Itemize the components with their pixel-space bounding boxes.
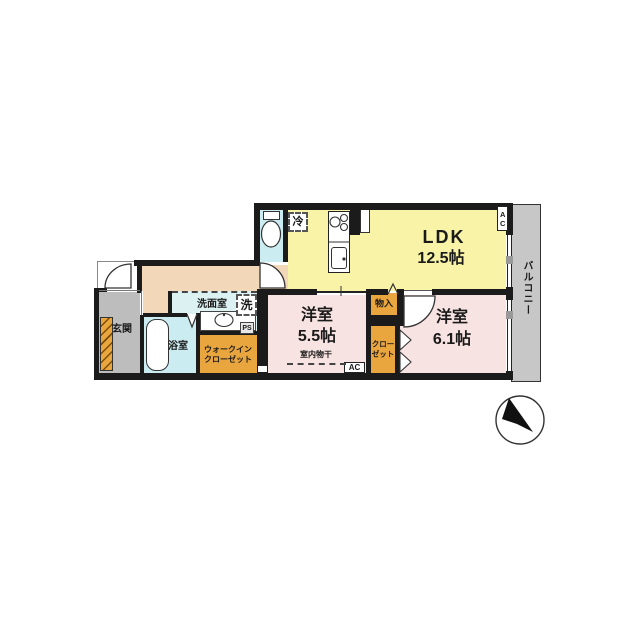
toilet-icon [262,221,281,247]
washer-space-box: 洗 [236,294,257,316]
bedroom2-door-arc [404,296,435,327]
ldk-area: 12.5帖 [417,251,464,267]
bedroom2-area: 6.1帖 [433,332,471,348]
fridge-space-box: 冷 [288,212,308,232]
closet-folding-door [400,352,411,372]
balcony-label: バルコニー [521,261,531,316]
bathroom-label: 浴室 [168,342,188,352]
closet-folding-door [400,330,411,350]
fridge-label: 冷 [293,217,304,228]
entrance-label: 玄関 [112,325,132,335]
storage-label: 物入 [375,300,393,309]
closet-label-line1: クロー [372,340,395,348]
bedroom1-name: 洋室 [301,308,333,324]
ldk-name: LDK [423,228,466,246]
north-arrow-icon [502,398,533,432]
entrance-door-arc [105,264,131,288]
bedroom1-area: 5.5帖 [298,329,336,345]
bedroom2-name: 洋室 [436,310,468,326]
closet-label-line2: ゼット [372,350,395,358]
vanity-faucet-icon [223,314,225,316]
ac-bottom-label: AC [349,364,361,372]
ac-unit-top-box: AC [497,206,508,231]
indoor-drying-dashes [287,360,346,365]
washroom-label: 洗面室 [197,300,227,310]
pipe-space-label: PS [242,325,251,332]
indoor-drying-label: 室内物干 [300,351,332,359]
washer-label: 洗 [240,299,252,311]
ac-top-label: AC [499,210,507,228]
pipe-space-box: PS [240,322,254,334]
wic-label-line1: ウォークイン [204,346,252,354]
stove-icon [341,224,348,231]
bathroom-door-mark [187,314,197,327]
faucet-icon [342,257,345,260]
stove-icon [341,215,348,222]
floor-plan: 冷 洗 PS AC AC LDK 12.5帖 洋室 5.5帖 室内物干 洋室 6… [0,0,640,640]
storage-door-mark [388,284,398,294]
stove-icon [330,217,340,227]
wic-label-line2: クローゼット [204,356,252,364]
toilet-door-arc [260,263,285,288]
ac-unit-bottom-box: AC [344,362,365,373]
